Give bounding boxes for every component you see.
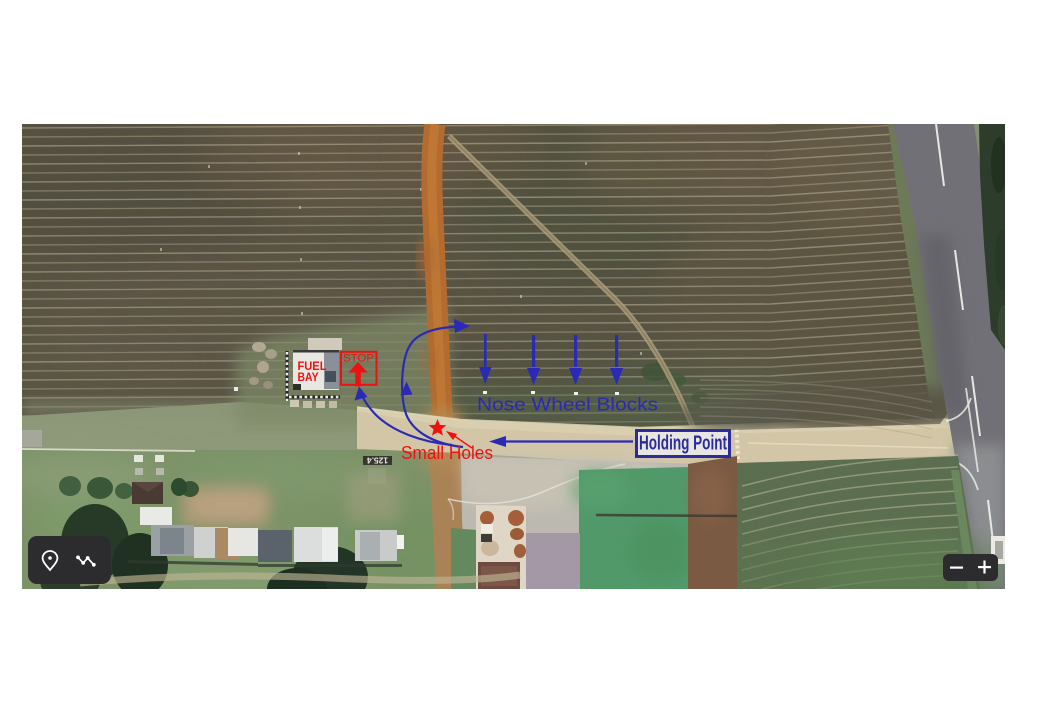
svg-text:Nose Wheel Blocks: Nose Wheel Blocks [477, 395, 658, 415]
svg-text:Holding Point: Holding Point [639, 433, 727, 455]
svg-text:125.4: 125.4 [367, 455, 389, 465]
svg-text:Small Holes: Small Holes [401, 442, 493, 463]
svg-text:BAY: BAY [298, 370, 319, 384]
